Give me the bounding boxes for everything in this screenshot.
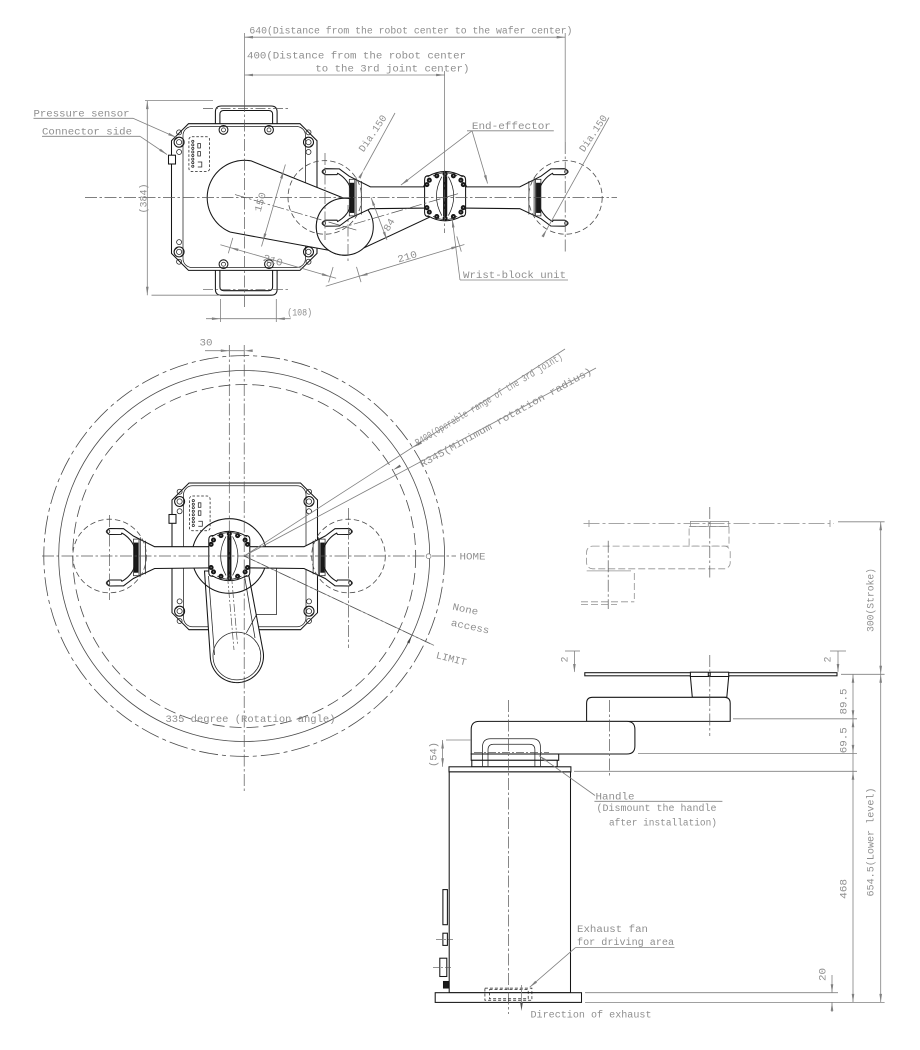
svg-text:Direction of exhaust: Direction of exhaust <box>531 1010 652 1022</box>
svg-text:654.5(Lower level): 654.5(Lower level) <box>866 788 878 897</box>
svg-text:30: 30 <box>200 339 213 350</box>
svg-text:20: 20 <box>819 968 830 981</box>
svg-text:Pressure sensor: Pressure sensor <box>34 110 130 121</box>
svg-text:Exhaust fan: Exhaust fan <box>577 924 648 936</box>
svg-text:640(Distance from the robot ce: 640(Distance from the robot center to th… <box>249 25 572 37</box>
svg-text:Handle: Handle <box>596 792 635 804</box>
svg-text:300(Stroke): 300(Stroke) <box>866 568 878 632</box>
svg-text:HOME: HOME <box>460 553 486 564</box>
svg-text:(108): (108) <box>287 308 312 320</box>
svg-text:(384): (384) <box>139 184 151 214</box>
svg-text:(Dismount the handle: (Dismount the handle <box>597 803 717 815</box>
svg-text:2: 2 <box>824 657 835 663</box>
svg-text:69.5: 69.5 <box>840 727 851 753</box>
svg-text:468: 468 <box>840 879 851 899</box>
svg-text:2: 2 <box>561 657 572 663</box>
svg-text:89.5: 89.5 <box>840 689 851 715</box>
svg-text:to the 3rd joint center): to the 3rd joint center) <box>315 64 469 76</box>
svg-text:335 degree (Rotation angle): 335 degree (Rotation angle) <box>166 714 336 726</box>
svg-text:after installation): after installation) <box>609 818 717 830</box>
svg-text:(54): (54) <box>429 742 441 767</box>
svg-text:400(Distance from the robot ce: 400(Distance from the robot center <box>247 51 466 63</box>
